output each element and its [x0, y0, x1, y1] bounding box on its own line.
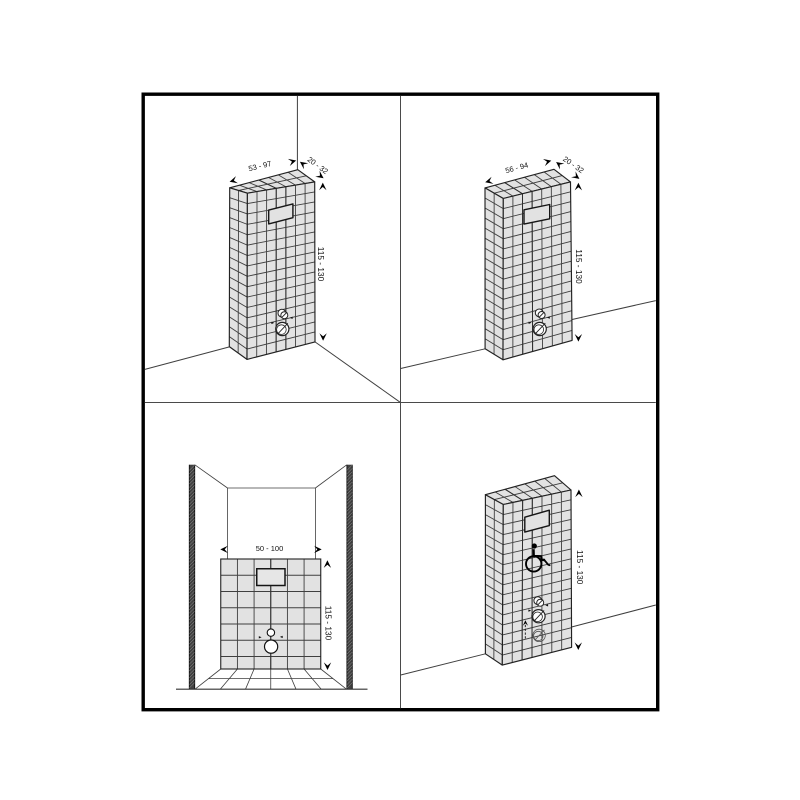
- svg-text:115 - 130: 115 - 130: [316, 247, 326, 282]
- svg-text:115 - 130: 115 - 130: [574, 249, 584, 284]
- svg-text:115 - 130: 115 - 130: [324, 606, 334, 641]
- svg-text:50 - 100: 50 - 100: [256, 544, 284, 553]
- svg-text:115 - 130: 115 - 130: [575, 550, 585, 585]
